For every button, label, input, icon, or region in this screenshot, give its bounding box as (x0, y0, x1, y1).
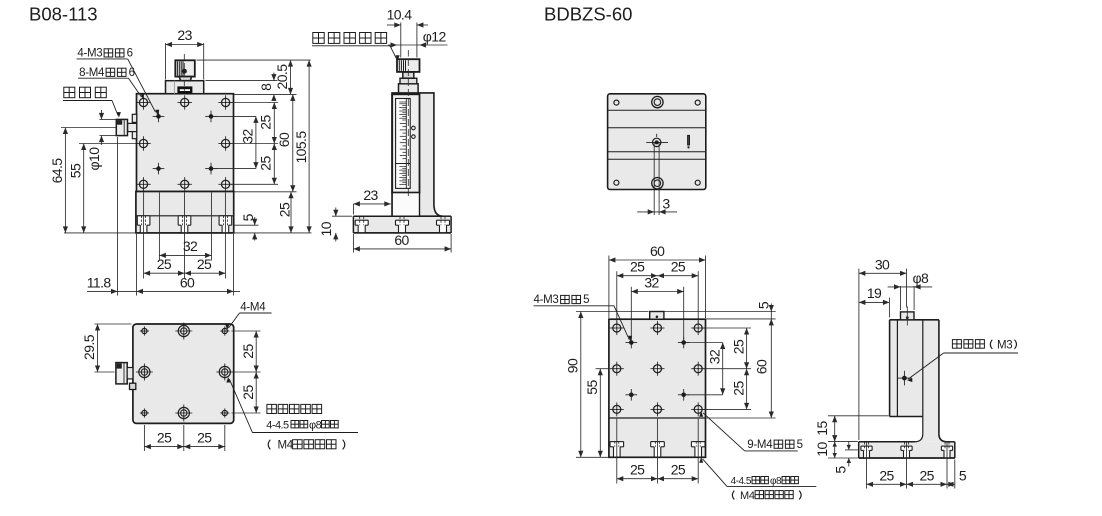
svg-text:64.5: 64.5 (49, 158, 65, 184)
svg-text:25: 25 (277, 202, 293, 217)
svg-text:25: 25 (730, 339, 746, 354)
svg-text:4-4.5: 4-4.5 (266, 420, 289, 432)
svg-text:32: 32 (644, 275, 659, 291)
svg-text:30: 30 (875, 256, 890, 272)
svg-text:60: 60 (276, 132, 292, 147)
svg-text:5: 5 (755, 301, 771, 309)
svg-text:25: 25 (630, 462, 645, 478)
svg-text:60: 60 (650, 243, 665, 259)
svg-text:M4: M4 (278, 439, 294, 451)
svg-text:55: 55 (584, 380, 600, 395)
svg-text:23: 23 (177, 27, 192, 43)
svg-text:25: 25 (920, 467, 935, 483)
svg-text:4-M3: 4-M3 (77, 48, 102, 60)
svg-text:9-M4: 9-M4 (747, 439, 773, 451)
svg-text:105.5: 105.5 (293, 131, 309, 164)
svg-text:25: 25 (240, 344, 256, 359)
svg-text:5: 5 (240, 213, 256, 221)
svg-text:29.5: 29.5 (81, 334, 97, 360)
svg-text:φ12: φ12 (423, 29, 447, 45)
svg-text:BDBZS-60: BDBZS-60 (544, 4, 632, 25)
svg-text:10: 10 (318, 221, 334, 236)
svg-text:15: 15 (814, 421, 830, 436)
svg-text:8-M4: 8-M4 (79, 67, 105, 79)
svg-text:25: 25 (197, 256, 212, 272)
svg-text:90: 90 (565, 358, 581, 373)
svg-text:4-M3: 4-M3 (534, 294, 559, 306)
svg-text:M4: M4 (740, 490, 755, 502)
svg-text:5: 5 (832, 466, 848, 474)
svg-text:60: 60 (180, 275, 195, 291)
svg-text:25: 25 (258, 115, 274, 130)
svg-text:5: 5 (797, 439, 803, 451)
svg-text:6: 6 (127, 48, 133, 60)
svg-text:φ8: φ8 (913, 270, 929, 286)
svg-text:10.4: 10.4 (387, 7, 413, 23)
svg-text:23: 23 (363, 187, 378, 203)
svg-text:4-4.5: 4-4.5 (731, 476, 752, 487)
svg-text:25: 25 (671, 259, 686, 275)
svg-text:25: 25 (157, 430, 172, 446)
svg-text:32: 32 (240, 129, 256, 144)
svg-text:32: 32 (707, 349, 723, 364)
svg-text:B08-113: B08-113 (29, 4, 98, 25)
svg-text:10: 10 (814, 442, 830, 457)
svg-text:25: 25 (630, 259, 645, 275)
svg-text:25: 25 (879, 467, 894, 483)
svg-text:60: 60 (394, 232, 409, 248)
svg-text:19: 19 (867, 285, 882, 301)
svg-text:25: 25 (157, 256, 172, 272)
svg-text:25: 25 (730, 381, 746, 396)
svg-text:20.5: 20.5 (274, 64, 290, 90)
svg-text:25: 25 (258, 156, 274, 171)
svg-text:4-M4: 4-M4 (240, 302, 266, 314)
svg-text:25: 25 (671, 462, 686, 478)
svg-text:φ10: φ10 (86, 147, 102, 171)
svg-text:5: 5 (583, 294, 589, 306)
svg-text:φ8: φ8 (309, 420, 322, 432)
svg-text:3: 3 (662, 196, 670, 212)
svg-text:8: 8 (258, 83, 274, 91)
svg-text:60: 60 (753, 359, 769, 374)
svg-text:φ8: φ8 (770, 476, 782, 487)
svg-text:25: 25 (240, 385, 256, 400)
svg-text:32: 32 (183, 238, 198, 254)
svg-text:5: 5 (959, 467, 967, 483)
svg-text:M3: M3 (997, 340, 1012, 352)
svg-text:11.8: 11.8 (87, 275, 112, 291)
svg-text:25: 25 (197, 430, 212, 446)
svg-text:55: 55 (67, 163, 83, 178)
svg-text:6: 6 (129, 67, 135, 79)
